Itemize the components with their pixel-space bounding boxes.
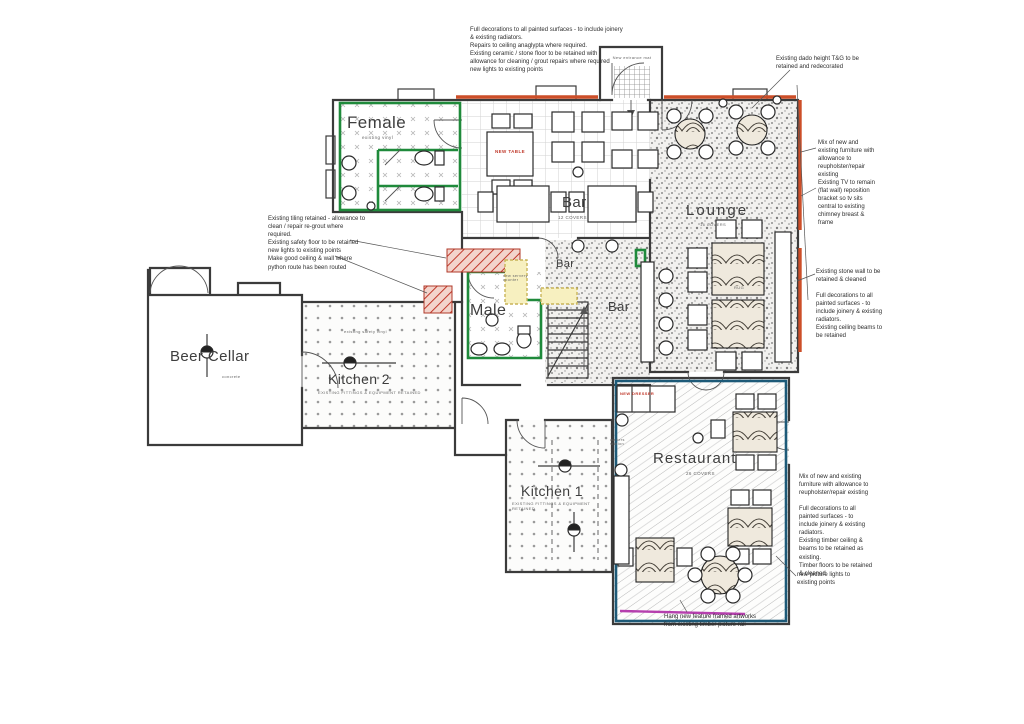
floor-plan-canvas: Female existing vinyl Bar 12 COVERS Bar … bbox=[0, 0, 1024, 724]
floor-plan-drawing bbox=[0, 0, 1024, 724]
